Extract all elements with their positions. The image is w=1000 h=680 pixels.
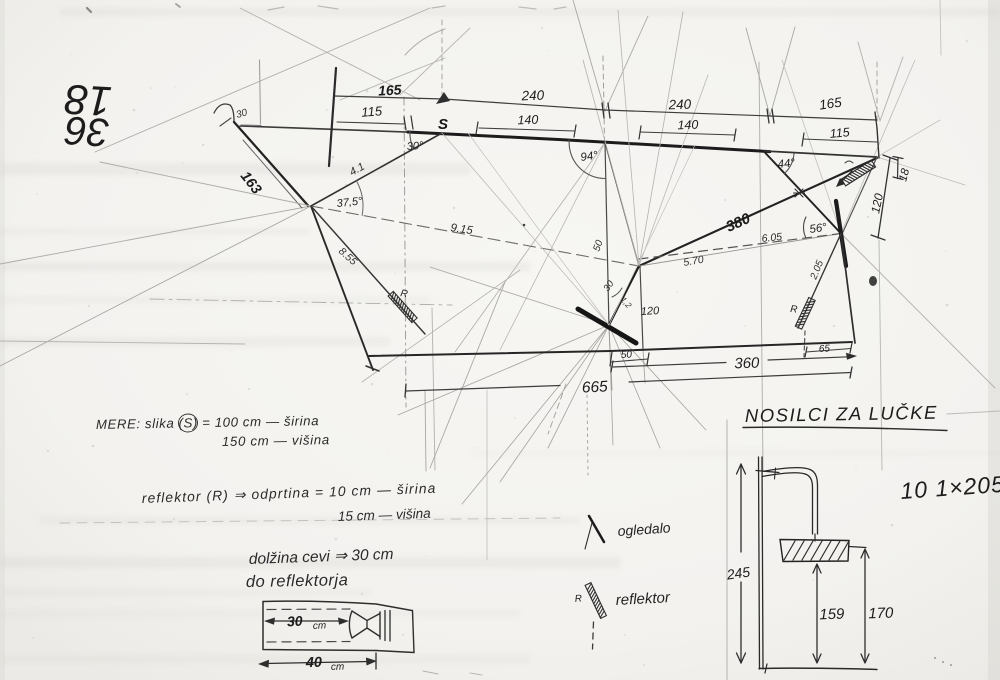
svg-text:65: 65	[819, 343, 831, 355]
svg-text:245: 245	[725, 563, 752, 582]
svg-text:665: 665	[581, 378, 608, 396]
svg-text:360: 360	[734, 355, 760, 373]
svg-text:56°: 56°	[809, 222, 828, 236]
svg-text:165: 165	[818, 94, 843, 112]
svg-text:165: 165	[378, 81, 402, 98]
svg-text:30: 30	[287, 613, 304, 630]
svg-text:R: R	[574, 593, 582, 605]
svg-text:36: 36	[63, 107, 111, 154]
svg-text:30°: 30°	[406, 140, 424, 153]
svg-text:R: R	[790, 304, 798, 316]
svg-text:S: S	[438, 116, 448, 133]
svg-text:do reflektorja: do reflektorja	[246, 571, 349, 591]
svg-text:40: 40	[305, 655, 323, 672]
svg-text:240: 240	[667, 97, 692, 113]
svg-text:115: 115	[829, 125, 850, 141]
svg-text:240: 240	[520, 88, 545, 104]
svg-text:94°: 94°	[580, 150, 599, 164]
svg-text:6.05: 6.05	[761, 231, 783, 245]
svg-text:50: 50	[621, 349, 633, 361]
svg-text:170: 170	[868, 605, 894, 623]
svg-text:140: 140	[677, 118, 698, 133]
svg-text:150 cm — višina: 150 cm — višina	[222, 432, 330, 449]
svg-text:44°: 44°	[777, 157, 796, 171]
svg-text:NOSILCI ZA LUČKE: NOSILCI ZA LUČKE	[745, 402, 938, 426]
svg-text:120: 120	[641, 305, 661, 318]
svg-text:115: 115	[361, 103, 383, 119]
svg-text:cm: cm	[331, 662, 345, 673]
svg-text:reflektor: reflektor	[615, 589, 671, 609]
svg-text:cm: cm	[313, 620, 327, 632]
svg-text:140: 140	[517, 113, 538, 128]
svg-text:159: 159	[819, 606, 845, 624]
